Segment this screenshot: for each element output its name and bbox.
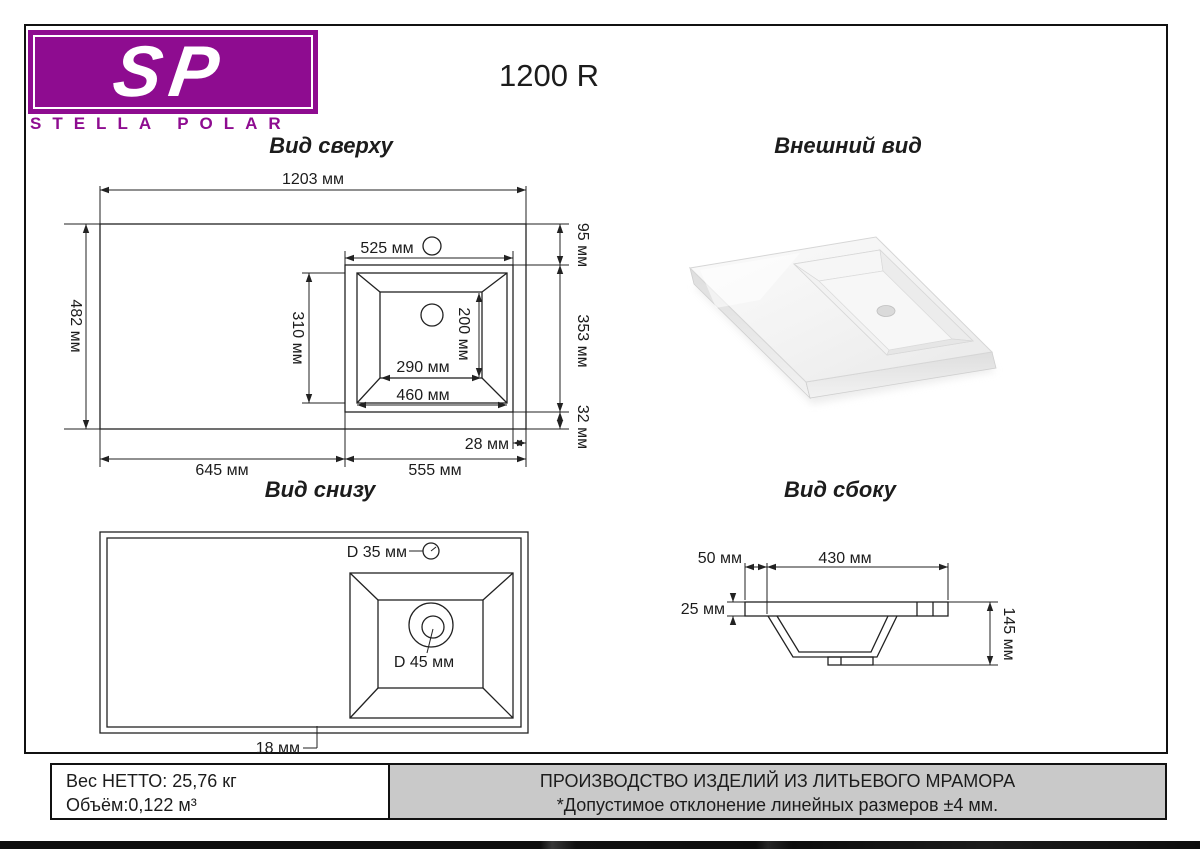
footer-volume: Объём:0,122 м³ bbox=[66, 793, 388, 817]
dim-label-rim-depth: 310 мм bbox=[289, 311, 306, 364]
ext-lines bbox=[873, 602, 998, 665]
ext-lines bbox=[513, 224, 569, 429]
product-title: 1200 R bbox=[499, 58, 599, 94]
dim-label-basin-bottom-width: 290 мм bbox=[396, 359, 449, 376]
ext-lines bbox=[100, 186, 526, 224]
dim-label-total-height: 145 мм bbox=[1000, 607, 1017, 660]
footer-weight: Вес НЕТТО: 25,76 кг bbox=[66, 769, 388, 793]
bottom-view-drawing: D 35 мм D 45 мм 18 мм bbox=[88, 525, 633, 765]
dim-label-left-section: 645 мм bbox=[195, 462, 248, 479]
wall-leader bbox=[303, 726, 317, 748]
ext-lines bbox=[727, 602, 745, 616]
basin-profile-inner bbox=[777, 616, 888, 652]
dim-label-basin-width-side: 430 мм bbox=[818, 550, 871, 567]
footer-weight-box: Вес НЕТТО: 25,76 кг Объём:0,122 м³ bbox=[50, 763, 388, 820]
brand-logo: SP bbox=[28, 30, 318, 114]
dim-label-width-total: 1203 мм bbox=[282, 171, 344, 188]
dim-label-drain-hole: D 45 мм bbox=[394, 654, 454, 671]
dim-label-faucet-hole: D 35 мм bbox=[347, 544, 407, 561]
dim-label-back-gap: 95 мм bbox=[574, 223, 591, 267]
ext-lines bbox=[302, 273, 345, 403]
spec-sheet-page: SP STELLA POLAR 1200 R Вид сверху Внешни… bbox=[0, 0, 1200, 849]
drain-flange bbox=[828, 657, 873, 665]
drain-hole-circle bbox=[421, 304, 443, 326]
dim-label-rim-width: 460 мм bbox=[396, 387, 449, 404]
scan-artifact-bar bbox=[0, 841, 1200, 849]
dim-label-sink-width: 525 мм bbox=[360, 240, 413, 257]
footer-production-box: ПРОИЗВОДСТВО ИЗДЕЛИЙ ИЗ ЛИТЬЕВОГО МРАМОР… bbox=[388, 763, 1167, 820]
drain-hole-photo bbox=[877, 306, 895, 317]
slab-edge-detail bbox=[917, 602, 933, 616]
countertop-inner-wall bbox=[107, 538, 521, 727]
side-view-title: Вид сбоку bbox=[784, 477, 896, 503]
dim-label-depth-total: 482 мм bbox=[67, 299, 84, 352]
faucet-hole-circle bbox=[423, 237, 441, 255]
footer-tolerance: *Допустимое отклонение линейных размеров… bbox=[390, 793, 1165, 817]
dim-label-wall-thickness: 18 мм bbox=[256, 740, 300, 757]
drain-inner-circle bbox=[422, 616, 444, 638]
brand-logo-sp-text: SP bbox=[109, 36, 237, 108]
footer-production: ПРОИЗВОДСТВО ИЗДЕЛИЙ ИЗ ЛИТЬЕВОГО МРАМОР… bbox=[390, 769, 1165, 793]
brand-name: STELLA POLAR bbox=[30, 114, 318, 134]
countertop-outline-bottom bbox=[100, 532, 528, 733]
dim-label-slab-thickness: 25 мм bbox=[681, 601, 725, 618]
side-view-drawing: 50 мм 430 мм 25 мм 145 мм bbox=[655, 545, 1035, 685]
top-view-title: Вид сверху bbox=[269, 133, 393, 159]
dim-label-side-gap: 28 мм bbox=[465, 436, 509, 453]
dim-label-basin-bottom-depth: 200 мм bbox=[455, 307, 472, 360]
dim-label-front-gap: 32 мм bbox=[574, 405, 591, 449]
external-view-title: Внешний вид bbox=[774, 133, 922, 159]
product-photo bbox=[660, 210, 1010, 425]
dim-label-right-section: 555 мм bbox=[408, 462, 461, 479]
top-view-drawing: 1203 мм 482 мм 525 мм 310 мм 200 мм 290 … bbox=[55, 168, 600, 486]
dim-label-sink-depth: 353 мм bbox=[574, 314, 591, 367]
dim-label-edge-offset: 50 мм bbox=[698, 550, 742, 567]
